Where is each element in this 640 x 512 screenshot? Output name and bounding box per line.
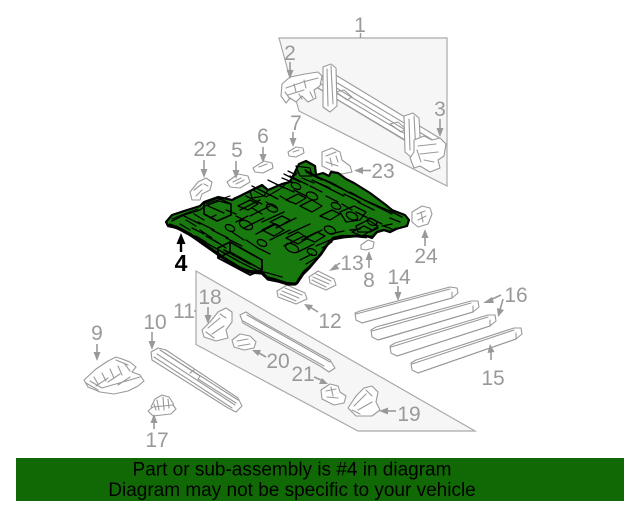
svg-text:23: 23 [371, 160, 394, 183]
svg-text:24: 24 [414, 245, 438, 268]
svg-text:11: 11 [173, 300, 195, 323]
svg-text:15: 15 [481, 367, 504, 390]
svg-text:9: 9 [91, 322, 103, 345]
svg-text:20: 20 [266, 350, 289, 373]
svg-text:22: 22 [193, 138, 216, 161]
svg-text:8: 8 [363, 269, 375, 292]
svg-text:16: 16 [504, 284, 527, 307]
svg-text:18: 18 [198, 286, 221, 309]
svg-text:2: 2 [284, 42, 296, 65]
svg-text:17: 17 [145, 429, 168, 452]
svg-text:12: 12 [318, 310, 341, 333]
svg-text:7: 7 [290, 112, 302, 135]
svg-text:3: 3 [434, 98, 446, 121]
svg-text:Part or sub-assembly is #4 in: Part or sub-assembly is #4 in diagram [133, 460, 452, 481]
svg-text:19: 19 [397, 403, 420, 426]
svg-text:4: 4 [175, 250, 188, 276]
svg-text:21: 21 [291, 363, 314, 386]
svg-text:13: 13 [340, 252, 363, 275]
svg-text:6: 6 [257, 125, 269, 148]
svg-text:Diagram may not be specific to: Diagram may not be specific to your vehi… [108, 480, 476, 501]
svg-text:5: 5 [231, 139, 243, 162]
svg-text:14: 14 [387, 266, 411, 289]
svg-text:10: 10 [143, 311, 166, 334]
